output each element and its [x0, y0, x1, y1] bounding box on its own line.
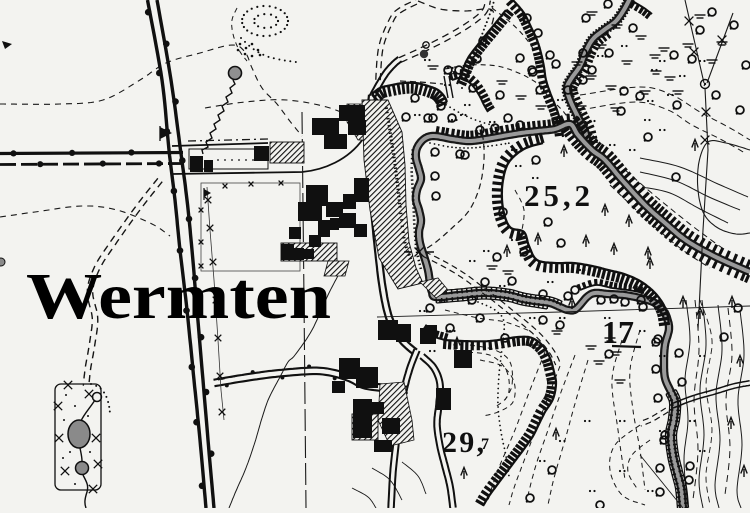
svg-text:Wermten: Wermten: [26, 260, 331, 333]
svg-text:25,2: 25,2: [524, 178, 590, 213]
svg-text:7: 7: [481, 436, 489, 453]
svg-text:17: 17: [602, 314, 634, 350]
svg-text:29,: 29,: [442, 426, 484, 459]
